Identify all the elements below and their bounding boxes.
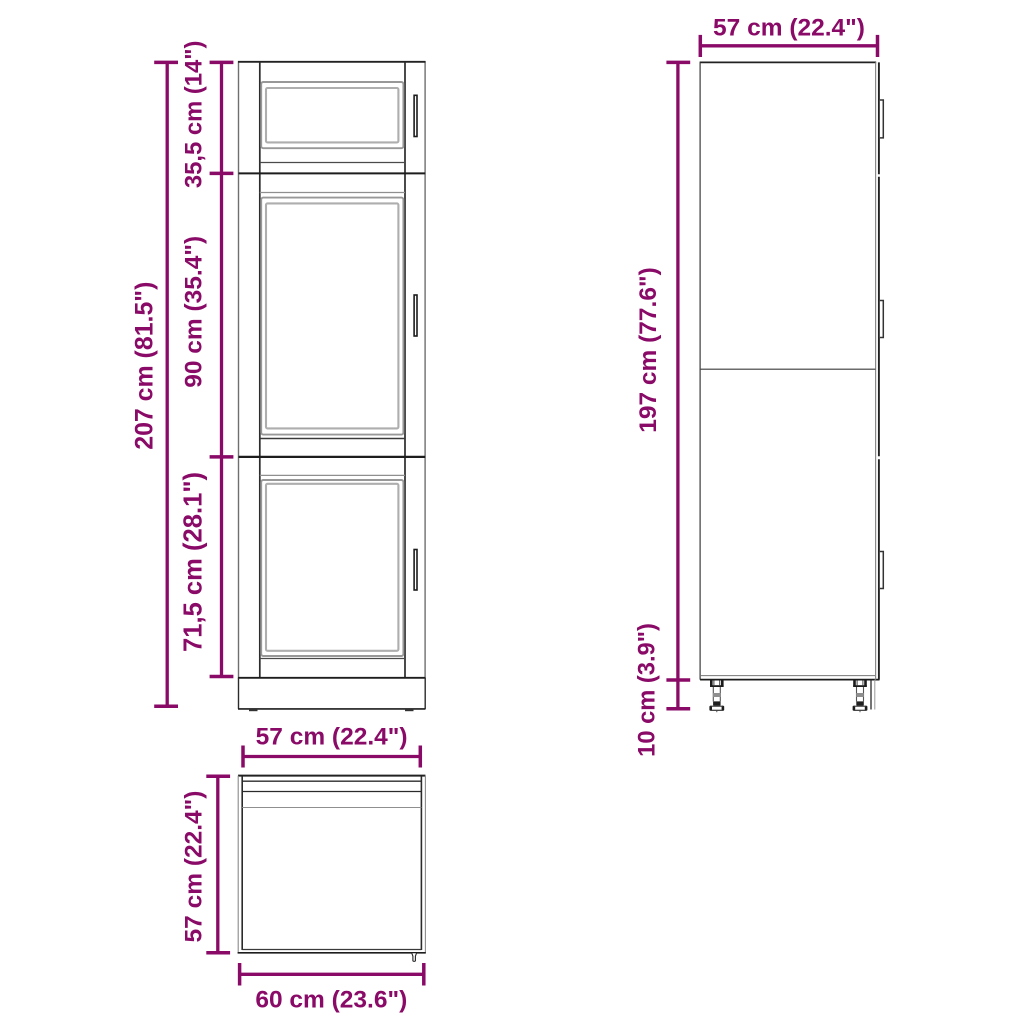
svg-text:35,5 cm (14"): 35,5 cm (14") bbox=[181, 41, 208, 189]
svg-text:60 cm (23.6"): 60 cm (23.6") bbox=[255, 986, 407, 1013]
svg-text:57 cm (22.4"): 57 cm (22.4") bbox=[713, 14, 865, 41]
svg-text:10 cm (3.9"): 10 cm (3.9") bbox=[634, 623, 660, 757]
svg-text:71,5 cm (28.1"): 71,5 cm (28.1") bbox=[180, 472, 208, 652]
svg-text:90 cm (35.4"): 90 cm (35.4") bbox=[181, 236, 208, 388]
svg-text:207 cm (81.5"): 207 cm (81.5") bbox=[131, 282, 159, 450]
svg-text:197 cm (77.6"): 197 cm (77.6") bbox=[635, 267, 662, 433]
svg-text:57 cm (22.4"): 57 cm (22.4") bbox=[256, 724, 408, 751]
svg-text:57 cm (22.4"): 57 cm (22.4") bbox=[181, 791, 208, 943]
